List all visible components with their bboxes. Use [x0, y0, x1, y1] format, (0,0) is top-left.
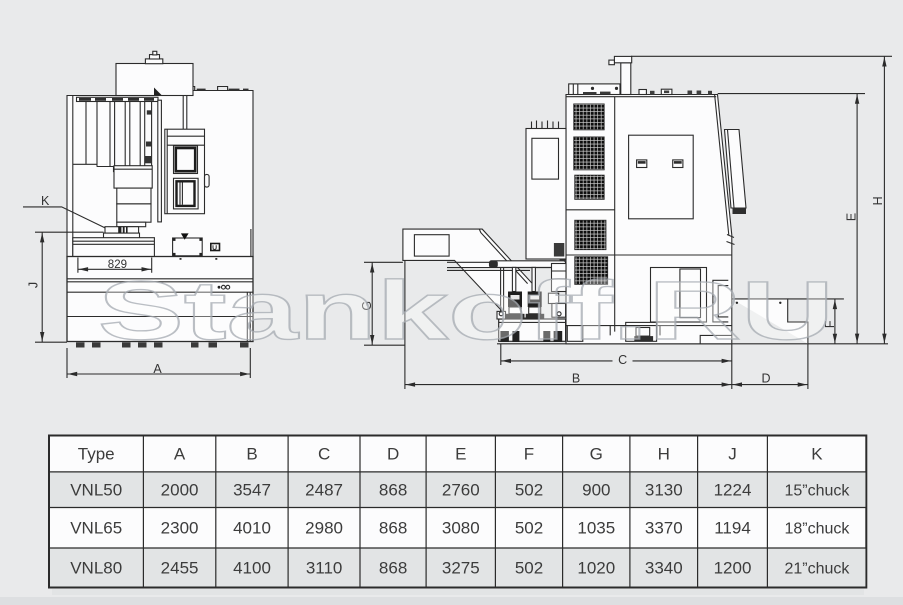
svg-text:18”chuck: 18”chuck — [784, 521, 850, 538]
svg-text:900: 900 — [582, 481, 610, 500]
svg-text:3130: 3130 — [645, 481, 683, 500]
svg-text:B: B — [246, 445, 257, 464]
svg-text:2300: 2300 — [161, 519, 199, 538]
svg-text:C: C — [318, 445, 330, 464]
svg-text:1194: 1194 — [714, 519, 751, 538]
svg-text:H: H — [871, 196, 885, 205]
svg-text:D: D — [761, 372, 770, 386]
svg-text:2980: 2980 — [305, 519, 343, 538]
svg-text:502: 502 — [515, 481, 543, 500]
svg-text:A: A — [153, 362, 162, 376]
svg-text:1020: 1020 — [577, 559, 615, 578]
svg-text:868: 868 — [379, 519, 407, 538]
svg-text:Type: Type — [78, 445, 115, 464]
svg-text:3547: 3547 — [233, 481, 271, 500]
svg-text:1200: 1200 — [714, 559, 752, 578]
svg-text:F: F — [524, 445, 534, 464]
svg-text:J: J — [27, 282, 41, 288]
svg-text:3110: 3110 — [306, 559, 343, 578]
svg-text:2760: 2760 — [442, 481, 480, 500]
svg-text:Stankoff.RU: Stankoff.RU — [98, 264, 834, 357]
svg-text:G: G — [590, 445, 603, 464]
svg-text:4100: 4100 — [233, 559, 271, 578]
svg-text:VNL65: VNL65 — [70, 519, 122, 538]
svg-text:3275: 3275 — [442, 559, 480, 578]
svg-text:3340: 3340 — [645, 559, 683, 578]
svg-text:VNL50: VNL50 — [70, 481, 122, 500]
svg-text:1224: 1224 — [714, 481, 752, 500]
svg-text:21”chuck: 21”chuck — [784, 561, 850, 578]
svg-text:2487: 2487 — [305, 481, 343, 500]
svg-text:B: B — [572, 372, 580, 386]
svg-text:A: A — [174, 445, 186, 464]
svg-text:1035: 1035 — [577, 519, 615, 538]
svg-text:3370: 3370 — [645, 519, 683, 538]
svg-text:J: J — [728, 445, 737, 464]
svg-text:15”chuck: 15”chuck — [784, 483, 850, 500]
svg-text:K: K — [41, 194, 50, 208]
svg-text:K: K — [811, 445, 823, 464]
svg-text:2000: 2000 — [161, 481, 199, 500]
svg-text:868: 868 — [379, 559, 407, 578]
svg-text:2455: 2455 — [161, 559, 199, 578]
svg-text:VNL80: VNL80 — [70, 559, 122, 578]
svg-text:H: H — [658, 445, 670, 464]
svg-text:502: 502 — [515, 559, 543, 578]
svg-text:E: E — [455, 445, 466, 464]
svg-text:3080: 3080 — [442, 519, 480, 538]
svg-text:D: D — [387, 445, 399, 464]
svg-text:E: E — [845, 213, 859, 221]
svg-text:502: 502 — [515, 519, 543, 538]
svg-text:868: 868 — [379, 481, 407, 500]
svg-text:4010: 4010 — [233, 519, 271, 538]
